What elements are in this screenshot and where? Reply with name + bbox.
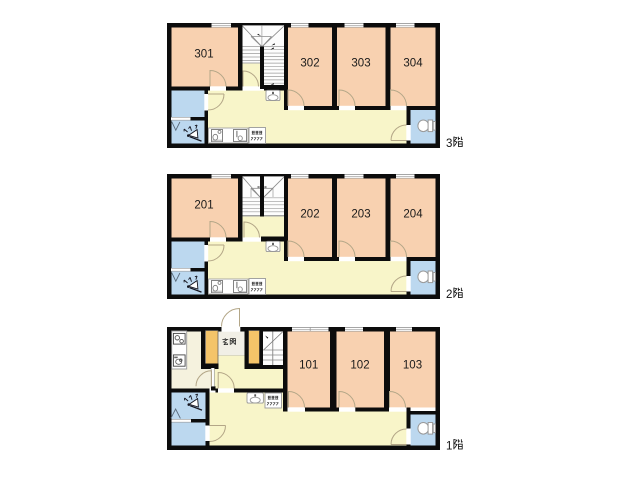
- svg-text:1: 1: [446, 441, 452, 453]
- svg-text:204: 204: [403, 209, 423, 221]
- svg-text:101: 101: [299, 360, 318, 372]
- svg-text:102: 102: [350, 360, 369, 372]
- svg-text:202: 202: [300, 209, 319, 221]
- svg-text:3: 3: [446, 138, 452, 150]
- svg-text:203: 203: [351, 209, 370, 221]
- svg-text:303: 303: [351, 58, 370, 70]
- svg-text:304: 304: [403, 58, 423, 70]
- svg-text:201: 201: [194, 200, 213, 212]
- svg-text:301: 301: [194, 49, 213, 61]
- svg-text:103: 103: [403, 360, 422, 372]
- svg-text:2: 2: [446, 289, 452, 301]
- svg-text:302: 302: [300, 58, 319, 70]
